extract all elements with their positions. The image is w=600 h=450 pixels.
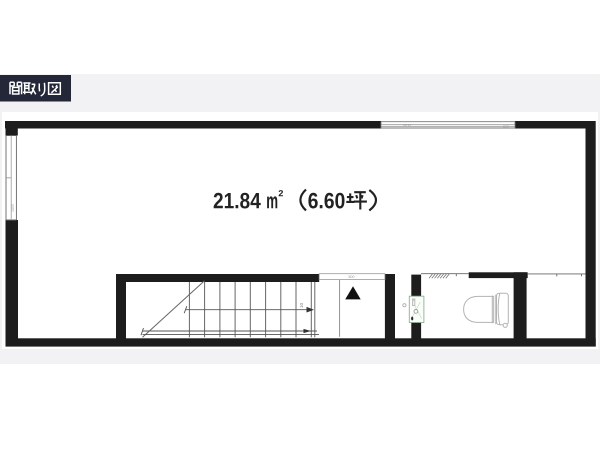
svg-text:10: 10 xyxy=(299,302,304,308)
svg-text:600: 600 xyxy=(503,125,509,129)
svg-text:800: 800 xyxy=(349,275,355,279)
svg-text:1800: 1800 xyxy=(11,204,15,212)
svg-text:1800: 1800 xyxy=(402,122,412,127)
